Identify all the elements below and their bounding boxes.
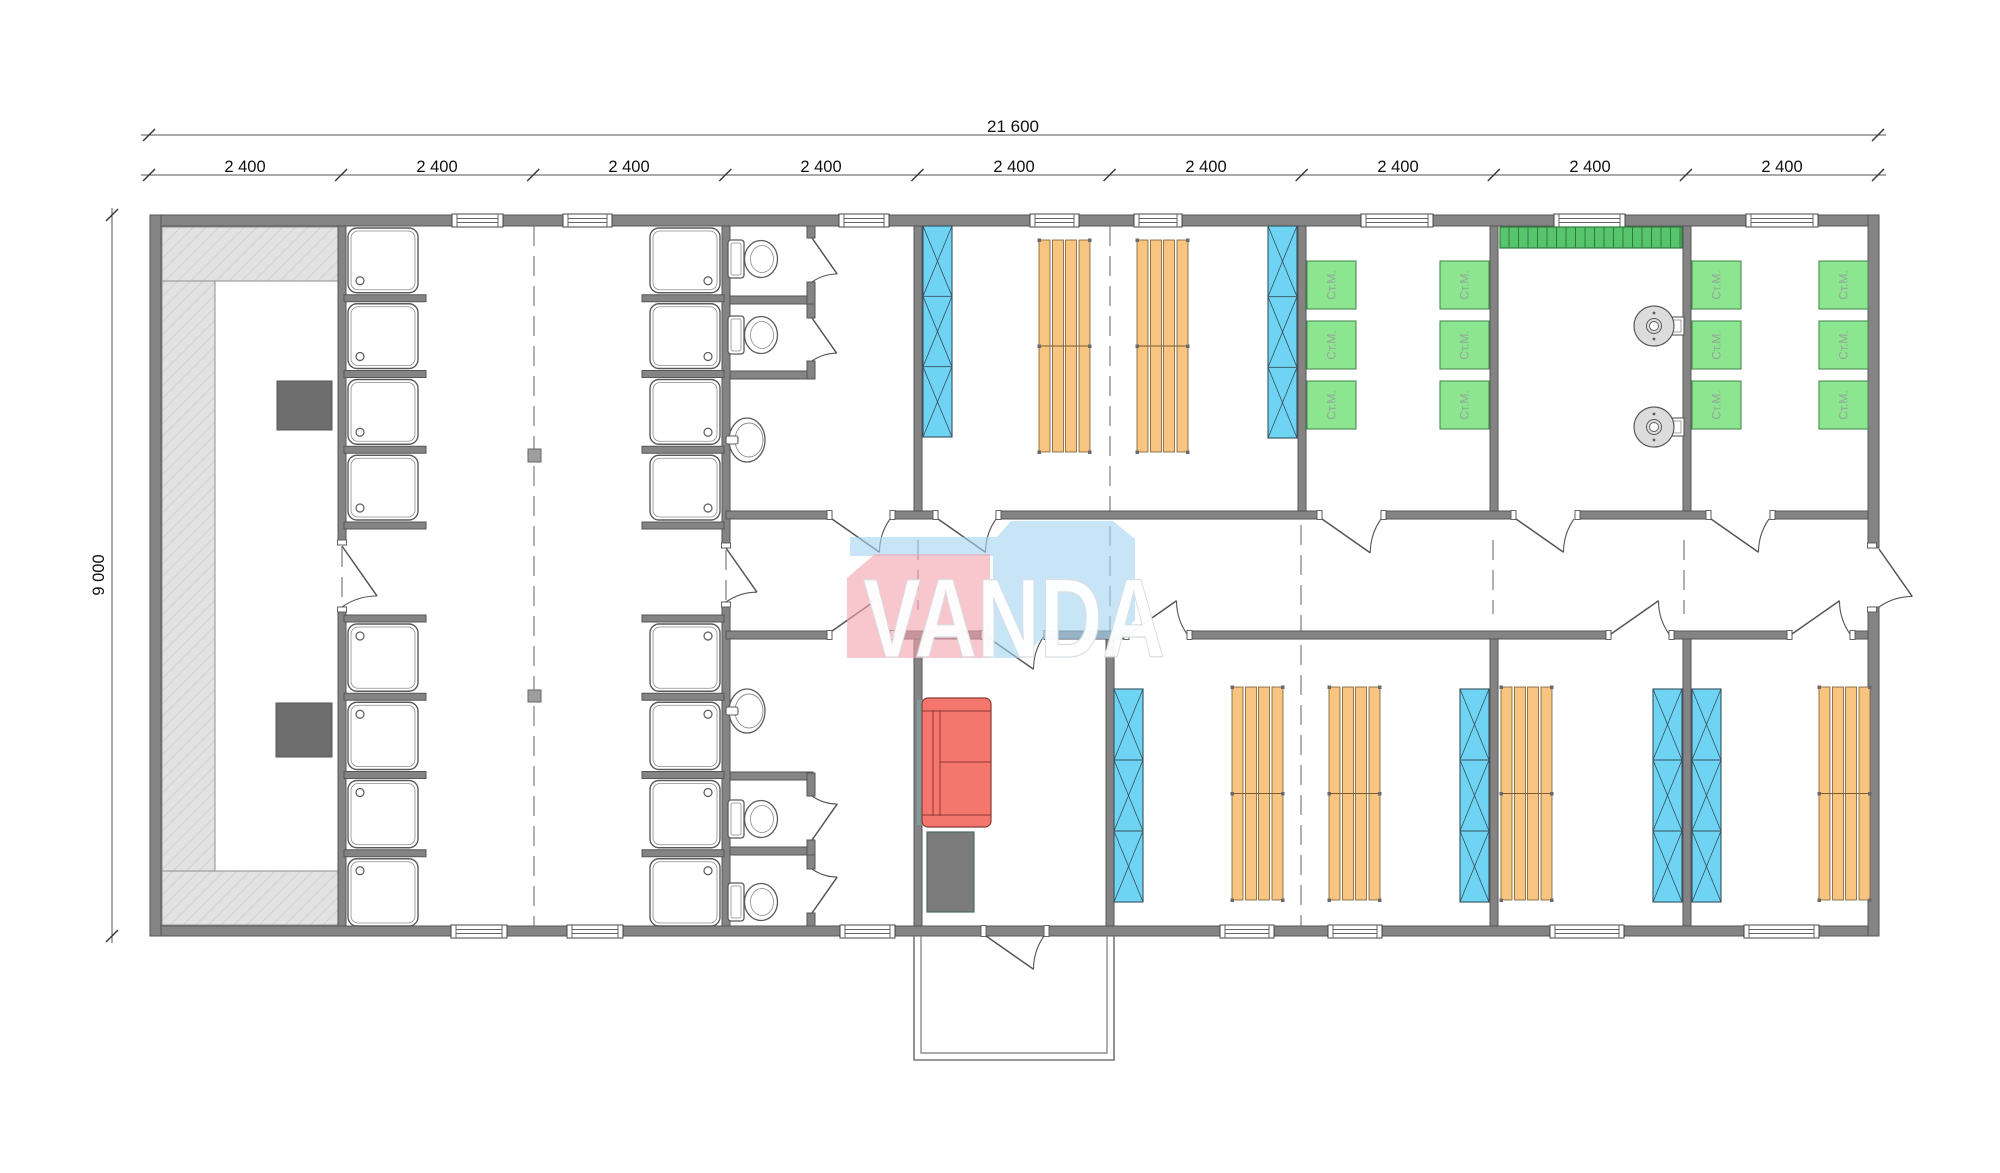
svg-text:2 400: 2 400: [224, 158, 265, 176]
svg-text:2 400: 2 400: [993, 158, 1034, 176]
svg-text:2 400: 2 400: [1761, 158, 1802, 176]
svg-text:2 400: 2 400: [1569, 158, 1610, 176]
svg-text:2 400: 2 400: [800, 158, 841, 176]
svg-text:Ст.М.: Ст.М.: [1458, 330, 1472, 360]
svg-text:Ст.М.: Ст.М.: [1458, 390, 1472, 420]
svg-text:9 000: 9 000: [90, 554, 108, 595]
svg-text:2 400: 2 400: [1185, 158, 1226, 176]
svg-text:VANDA: VANDA: [863, 556, 1165, 681]
svg-text:Ст.М.: Ст.М.: [1458, 270, 1472, 300]
svg-text:Ст.М.: Ст.М.: [1325, 390, 1339, 420]
svg-text:Ст.М.: Ст.М.: [1837, 390, 1851, 420]
svg-text:21 600: 21 600: [987, 117, 1039, 136]
svg-text:Ст.М.: Ст.М.: [1710, 390, 1724, 420]
svg-text:Ст.М.: Ст.М.: [1710, 330, 1724, 360]
svg-text:Ст.М.: Ст.М.: [1325, 330, 1339, 360]
svg-text:2 400: 2 400: [608, 158, 649, 176]
svg-text:2 400: 2 400: [1377, 158, 1418, 176]
svg-text:Ст.М.: Ст.М.: [1325, 270, 1339, 300]
svg-text:2 400: 2 400: [416, 158, 457, 176]
svg-text:Ст.М.: Ст.М.: [1837, 270, 1851, 300]
svg-text:Ст.М.: Ст.М.: [1837, 330, 1851, 360]
svg-text:Ст.М.: Ст.М.: [1710, 270, 1724, 300]
